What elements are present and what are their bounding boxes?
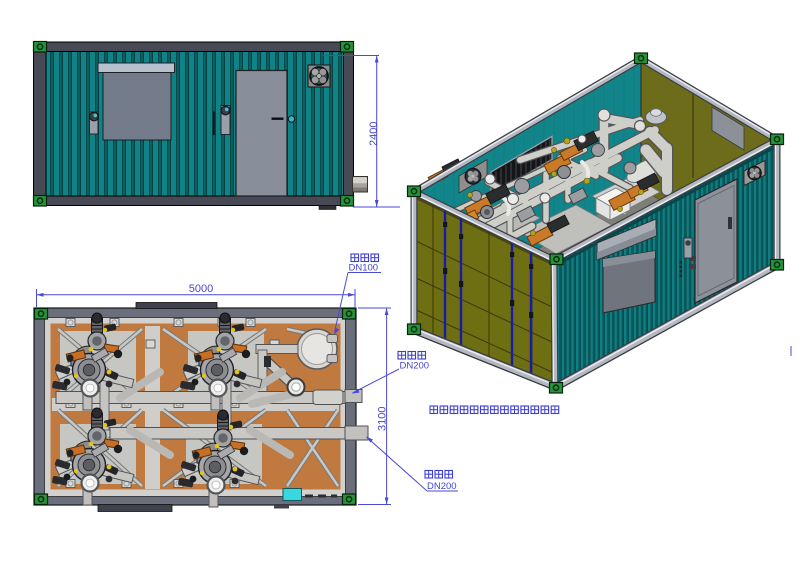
svg-text:DN100: DN100 [349, 263, 379, 274]
svg-text:2400: 2400 [368, 122, 380, 146]
svg-text:3100: 3100 [377, 407, 389, 431]
svg-text:DN200: DN200 [427, 481, 457, 492]
svg-text:5000: 5000 [189, 283, 213, 295]
svg-text:DN200: DN200 [400, 361, 430, 372]
